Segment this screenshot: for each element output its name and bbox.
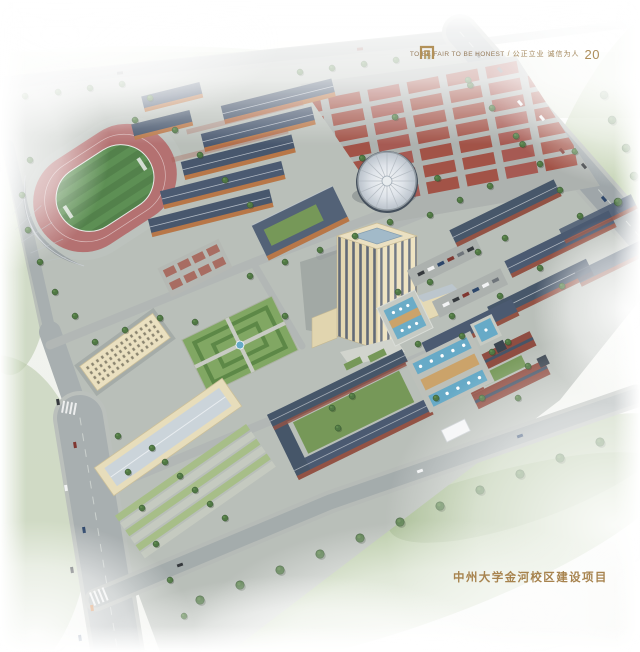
slogan-chinese: 公正立业 诚信为人 (513, 49, 580, 59)
slogan-bar: TO BE FAIR TO BE HONEST / 公正立业 诚信为人 20 (410, 45, 600, 63)
campus-aerial-view (0, 0, 640, 652)
page-number: 20 (585, 47, 600, 62)
slogan-separator: / (508, 51, 510, 58)
campus-rendering-page: TO BE FAIR TO BE HONEST / 公正立业 诚信为人 20 中… (0, 0, 640, 652)
project-title: 中州大学金河校区建设项目 (453, 569, 608, 585)
developer-logo-icon (419, 45, 435, 60)
fog (0, 0, 640, 652)
